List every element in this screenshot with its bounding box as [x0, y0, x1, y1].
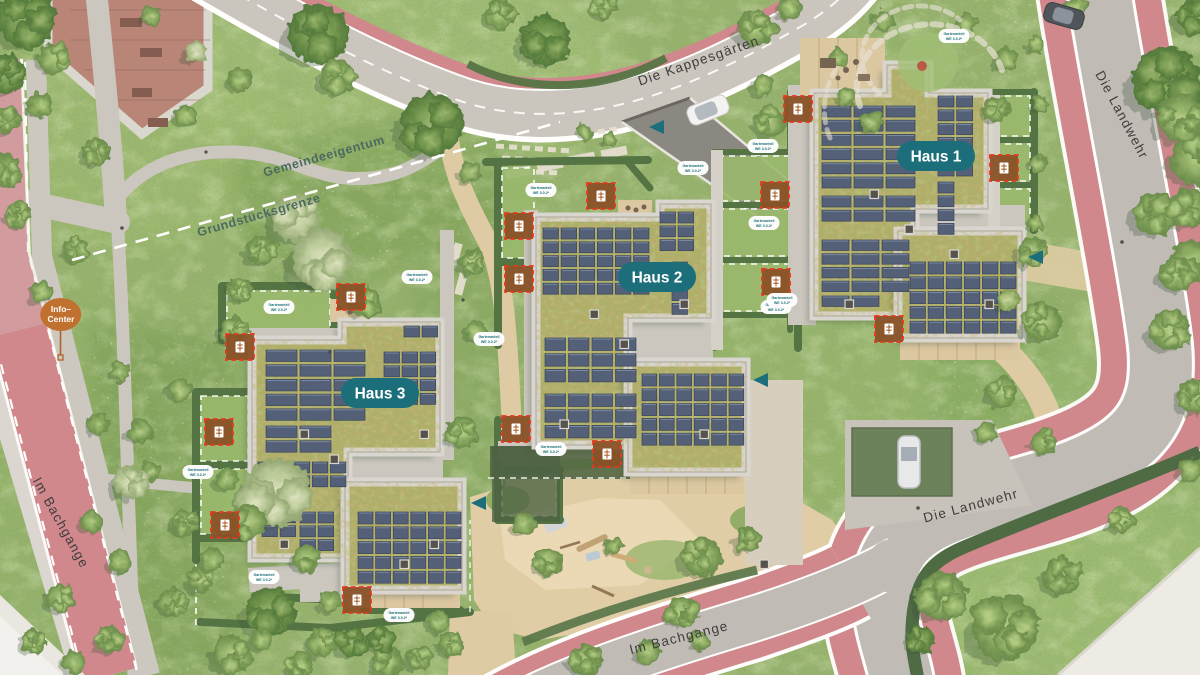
- svg-text:Haus 3: Haus 3: [355, 386, 406, 403]
- svg-text:Haus 2: Haus 2: [632, 270, 683, 287]
- svg-text:WE 3.0.2*: WE 3.0.2*: [946, 37, 963, 41]
- svg-text:Gartenanteil: Gartenanteil: [254, 573, 275, 577]
- svg-text:Gartenanteil: Gartenanteil: [772, 296, 793, 300]
- svg-text:Gartenanteil: Gartenanteil: [683, 164, 704, 168]
- svg-text:Haus 1: Haus 1: [911, 149, 962, 166]
- svg-text:WE 3.0.2*: WE 3.0.2*: [755, 147, 772, 151]
- svg-text:WE 3.0.2*: WE 3.0.2*: [768, 308, 785, 312]
- svg-text:Info–: Info–: [51, 304, 72, 314]
- svg-text:Gartenanteil: Gartenanteil: [188, 468, 209, 472]
- svg-text:Center: Center: [48, 314, 76, 324]
- svg-text:Gartenanteil: Gartenanteil: [531, 186, 552, 190]
- svg-text:WE 3.0.2*: WE 3.0.2*: [774, 301, 791, 305]
- svg-text:Gartenanteil: Gartenanteil: [389, 611, 410, 615]
- svg-text:Gartenanteil: Gartenanteil: [754, 219, 775, 223]
- svg-text:WE 3.0.2*: WE 3.0.2*: [481, 340, 498, 344]
- svg-text:Gartenanteil: Gartenanteil: [269, 303, 290, 307]
- svg-text:Gartenanteil: Gartenanteil: [407, 273, 428, 277]
- svg-text:WE 3.0.2*: WE 3.0.2*: [391, 616, 408, 620]
- svg-text:WE 3.0.2*: WE 3.0.2*: [533, 191, 550, 195]
- svg-text:WE 3.0.2*: WE 3.0.2*: [256, 578, 273, 582]
- svg-text:WE 3.0.2*: WE 3.0.2*: [756, 224, 773, 228]
- svg-text:Gartenanteil: Gartenanteil: [944, 32, 965, 36]
- svg-text:Gartenanteil: Gartenanteil: [541, 445, 562, 449]
- svg-text:Gartenanteil: Gartenanteil: [479, 335, 500, 339]
- svg-text:Gartenanteil: Gartenanteil: [753, 142, 774, 146]
- svg-text:WE 3.0.2*: WE 3.0.2*: [190, 473, 207, 477]
- svg-text:WE 3.0.2*: WE 3.0.2*: [271, 308, 288, 312]
- svg-text:WE 3.0.2*: WE 3.0.2*: [409, 278, 426, 282]
- svg-text:WE 3.0.2*: WE 3.0.2*: [543, 450, 560, 454]
- svg-text:WE 3.0.2*: WE 3.0.2*: [685, 169, 702, 173]
